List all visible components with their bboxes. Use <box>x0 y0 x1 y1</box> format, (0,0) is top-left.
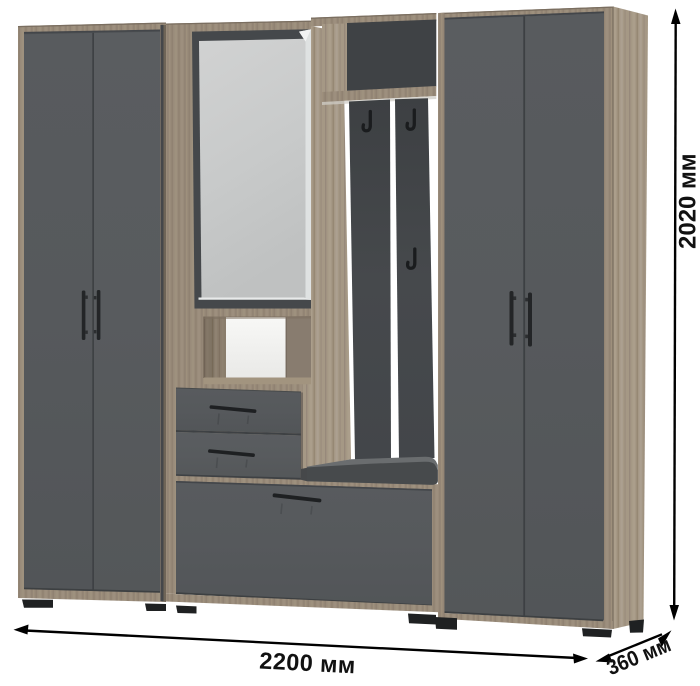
svg-text:2020 мм: 2020 мм <box>675 153 700 249</box>
svg-text:2200 мм: 2200 мм <box>259 648 357 679</box>
